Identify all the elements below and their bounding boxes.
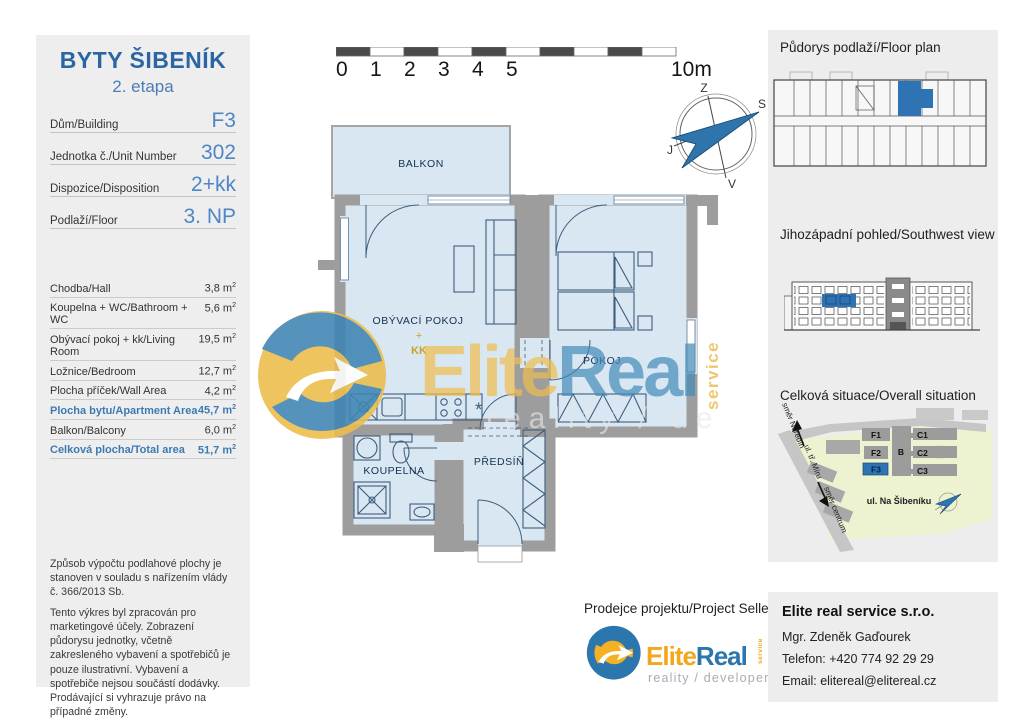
legal-paragraph: Způsob výpočtu podlahové plochy je stano…: [50, 557, 238, 599]
contact-person: Mgr. Zdeněk Gaďourek: [782, 630, 911, 644]
bathroom-area: [348, 430, 440, 530]
info-row-label: Podlaží/Floor: [50, 215, 118, 227]
area-row: Plocha příček/Wall Area 4,2 m2: [50, 381, 236, 401]
label-bedroom: POKOJ: [583, 355, 621, 367]
bedroom-area: [544, 200, 692, 432]
area-row-label: Plocha příček/Wall Area: [50, 385, 166, 397]
area-row-value: 45,7 m2: [198, 404, 236, 417]
mini-floorplan: [772, 70, 994, 172]
area-row-label: Plocha bytu/Apartment Area: [50, 405, 198, 417]
block-f2: F2: [871, 448, 881, 458]
scale-end-label: 10m: [671, 58, 712, 82]
seller-logo-icon: [587, 626, 641, 680]
info-row-label: Jednotka č./Unit Number: [50, 151, 177, 163]
elevation-section-title: Jihozápadní pohled/Southwest view: [780, 227, 995, 242]
area-row-label: Chodba/Hall: [50, 283, 111, 295]
area-row: Ložnice/Bedroom 12,7 m2: [50, 361, 236, 381]
contact-phone: Telefon: +420 774 92 29 29: [782, 652, 934, 666]
area-row-value: 3,8 m2: [205, 282, 236, 295]
info-row: Jednotka č./Unit Number 302: [50, 140, 236, 165]
contact-box: Elite real service s.r.o. Mgr. Zdeněk Ga…: [768, 592, 998, 702]
area-row-value: 4,2 m2: [205, 385, 236, 398]
area-row: Obývací pokoj + kk/Living Room 19,5 m2: [50, 329, 236, 361]
block-b: B: [898, 447, 904, 457]
context-panel: Půdorys podlaží/Floor plan Jihozápadní p…: [768, 30, 998, 562]
info-row-label: Dispozice/Disposition: [50, 183, 159, 195]
scale-bar: [336, 47, 678, 58]
block-f1: F1: [871, 430, 881, 440]
seller-label: Prodejce projektu/Project Seller: [584, 601, 773, 616]
info-row-label: Dům/Building: [50, 119, 118, 131]
scale-tick-label: 2: [404, 58, 438, 82]
street-sibeniku: ul. Na Šibeníku: [867, 495, 932, 506]
seller-brand-b: Real: [696, 641, 747, 671]
info-row-value: 2+kk: [191, 174, 236, 195]
seller-brand-a: Elite: [646, 641, 696, 671]
label-living-kk: KK: [411, 345, 427, 357]
block-c3: C3: [917, 466, 928, 476]
contact-email: Email: elitereal@elitereal.cz: [782, 674, 936, 688]
block-c2: C2: [917, 448, 928, 458]
label-balcony: BALKON: [398, 158, 444, 170]
area-row: Celková plocha/Total area 51,7 m2: [50, 440, 236, 460]
svg-text:EliteReal: EliteReal: [646, 641, 747, 671]
legal-disclaimer: Způsob výpočtu podlahové plochy je stano…: [50, 557, 238, 726]
scale-tick-label: 0: [336, 58, 370, 82]
scale-tick-label: 4: [472, 58, 506, 82]
seller-logo: EliteReal service reality / developer: [584, 619, 769, 691]
unit-info-panel: BYTY ŠIBENÍK 2. etapa Dům/Building F3 Je…: [36, 35, 250, 687]
compass-north: S: [758, 97, 766, 111]
area-row: Koupelna + WC/Bathroom + WC 5,6 m2: [50, 298, 236, 330]
area-row-label: Ložnice/Bedroom: [50, 366, 136, 378]
seller-brand-service: service: [757, 638, 764, 664]
project-title: BYTY ŠIBENÍK: [36, 47, 250, 74]
seller-brand-tagline: reality / developer: [648, 671, 769, 685]
legal-paragraph: Tento výkres byl zpracován pro marketing…: [50, 606, 238, 719]
info-row: Dispozice/Disposition 2+kk: [50, 172, 236, 197]
project-stage: 2. etapa: [36, 77, 250, 97]
area-table: Chodba/Hall 3,8 m2 Koupelna + WC/Bathroo…: [50, 278, 236, 459]
highlighted-unit: [898, 81, 921, 116]
label-bathroom: KOUPELNA: [363, 465, 424, 477]
info-row-value: F3: [211, 110, 236, 131]
area-row-value: 6,0 m2: [205, 424, 236, 437]
scale-tick-label: 5: [506, 58, 540, 82]
info-row-value: 3. NP: [183, 206, 236, 227]
area-row-label: Celková plocha/Total area: [50, 444, 185, 456]
area-row-value: 12,7 m2: [198, 365, 236, 378]
label-living: OBÝVACÍ POKOJ: [373, 314, 464, 327]
area-row-label: Obývací pokoj + kk/Living Room: [50, 334, 198, 358]
floorplan-sheet: { "left_panel": { "title": "BYTY ŠIBENÍK…: [0, 0, 1024, 724]
area-row-value: 19,5 m2: [198, 333, 236, 346]
floorplan-drawing: * BALKON OBÝVACÍ POKOJ POKOJ KOUPELNA PŘ…: [318, 100, 728, 570]
compass-east: V: [728, 177, 736, 190]
block-c1: C1: [917, 430, 928, 440]
kitchen-asterisk: *: [475, 400, 483, 421]
area-row-value: 51,7 m2: [198, 444, 236, 457]
area-row: Plocha bytu/Apartment Area 45,7 m2: [50, 400, 236, 420]
scale-tick-label: 1: [370, 58, 404, 82]
area-row-value: 5,6 m2: [205, 302, 236, 315]
info-row: Podlaží/Floor 3. NP: [50, 204, 236, 229]
block-f3: F3: [871, 465, 881, 475]
area-row-label: Koupelna + WC/Bathroom + WC: [50, 302, 205, 326]
info-row: Dům/Building F3: [50, 108, 236, 133]
scale-labels: 0 1 2 3 4 5: [336, 58, 540, 82]
contact-company: Elite real service s.r.o.: [782, 604, 934, 620]
label-living-plus: +: [416, 330, 422, 342]
scale-tick-label: 3: [438, 58, 472, 82]
situation-map: F1 F2 F3 B C1 C2 C3 směr Neředín ul. tř.…: [770, 400, 996, 555]
floorplan-section-title: Půdorys podlaží/Floor plan: [780, 40, 941, 55]
area-row: Balkon/Balcony 6,0 m2: [50, 420, 236, 440]
unit-info-rows: Dům/Building F3 Jednotka č./Unit Number …: [50, 101, 236, 229]
area-row-label: Balkon/Balcony: [50, 425, 126, 437]
info-row-value: 302: [201, 142, 236, 163]
compass-west: Z: [700, 81, 707, 95]
label-hall: PŘEDSÍŇ: [474, 455, 524, 468]
area-row: Chodba/Hall 3,8 m2: [50, 278, 236, 298]
elevation-view: [784, 274, 980, 338]
